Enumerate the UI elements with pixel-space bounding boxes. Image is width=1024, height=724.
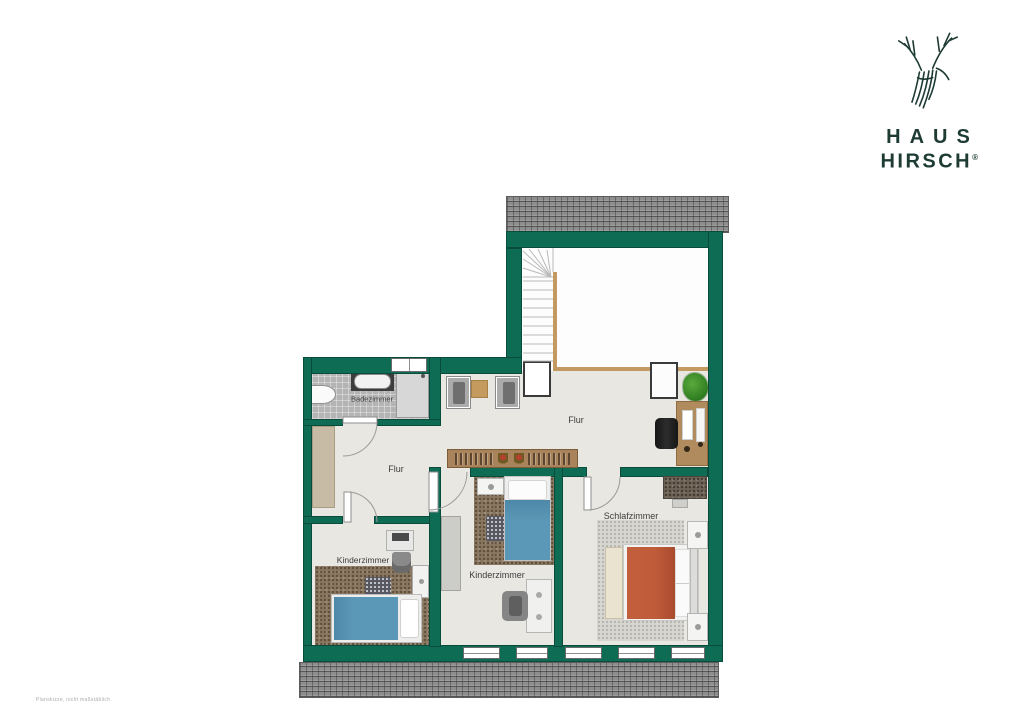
floor-plan: Badezimmer Flur Flur Kinderzimmer Kinder… [0, 0, 1024, 724]
room-label-flur-main: Flur [568, 415, 584, 425]
door-leaves [343, 417, 591, 522]
door-leaf [344, 492, 351, 522]
door-leaf [429, 472, 438, 512]
door-leaf [584, 477, 591, 510]
room-label-kinderzimmer-left: Kinderzimmer [337, 555, 389, 565]
staircase [523, 248, 553, 361]
room-label-schlafzimmer: Schlafzimmer [604, 511, 659, 521]
door-leaf [343, 417, 377, 423]
door-swing-arcs [343, 422, 620, 522]
stairs-doors-overlay [0, 0, 1024, 724]
plan-disclaimer: Planskizze, nicht maßstäblich [36, 697, 110, 703]
floorplan-page: HAUS HIRSCH® [0, 0, 1024, 724]
room-label-badezimmer: Badezimmer [351, 395, 393, 404]
room-label-kinderzimmer-mid: Kinderzimmer [469, 570, 525, 580]
room-label-flur-left: Flur [388, 464, 404, 474]
